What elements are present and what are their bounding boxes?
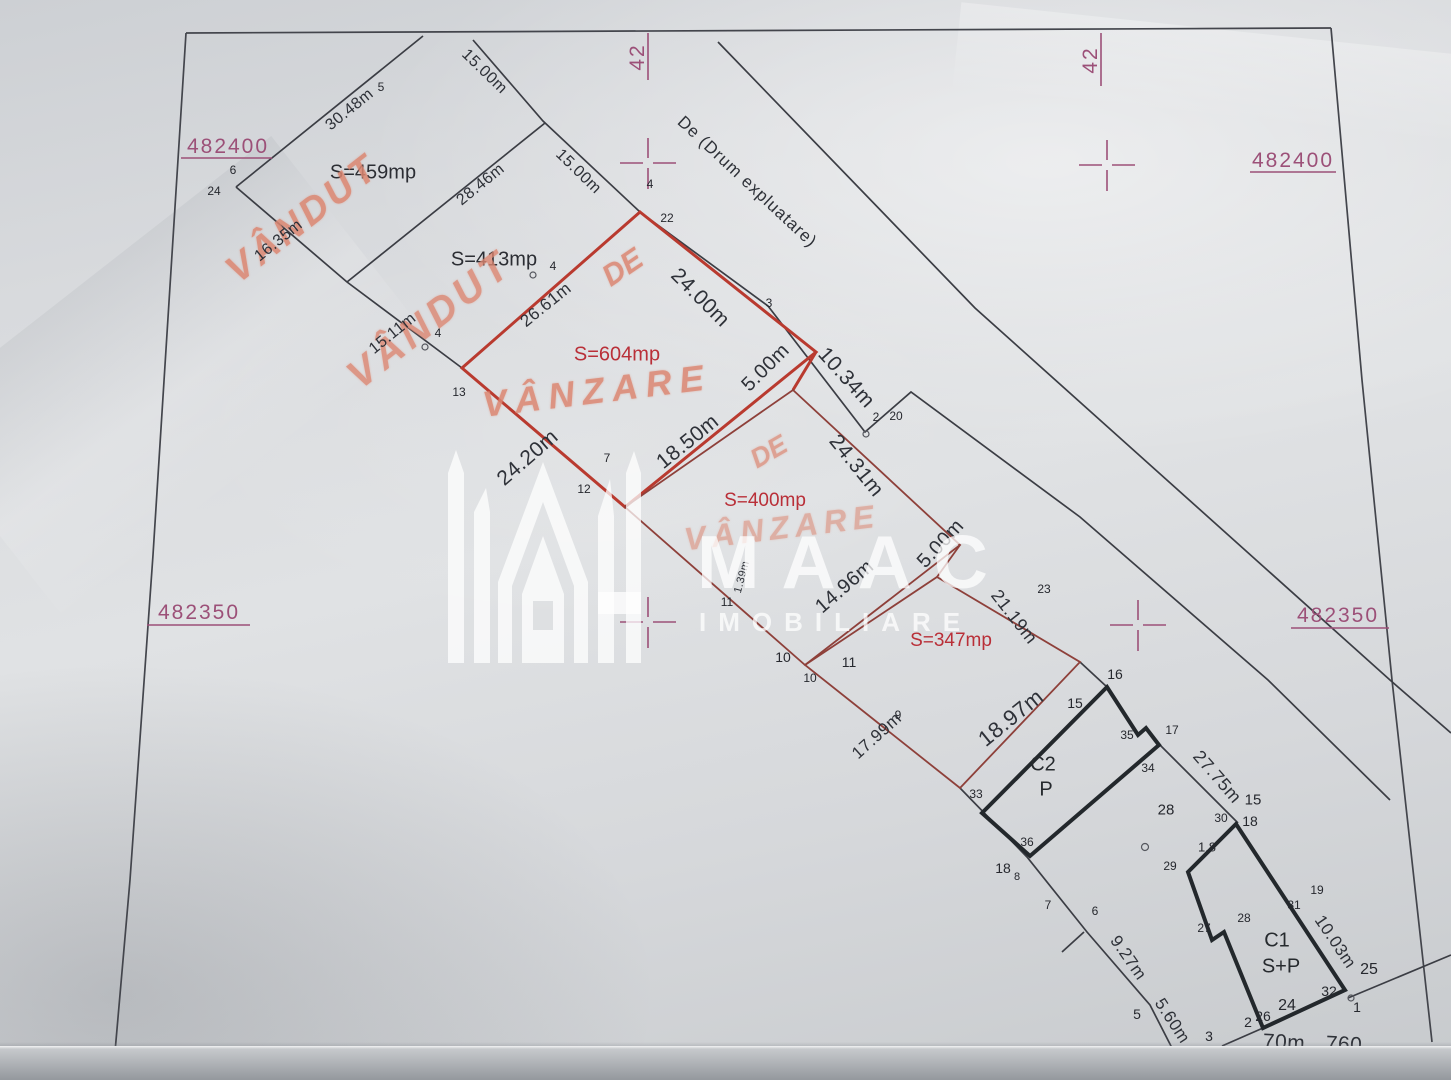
watermark-brand: MAAC	[697, 519, 1010, 605]
cadastral-plan-scan: 482400 482400 482350 482350 42 42 De (Dr…	[0, 0, 1451, 1080]
maac-logo-icon	[448, 450, 641, 663]
paper-fold-edge	[0, 1046, 1451, 1080]
watermark-tagline: IMOBILIARE	[699, 607, 972, 638]
